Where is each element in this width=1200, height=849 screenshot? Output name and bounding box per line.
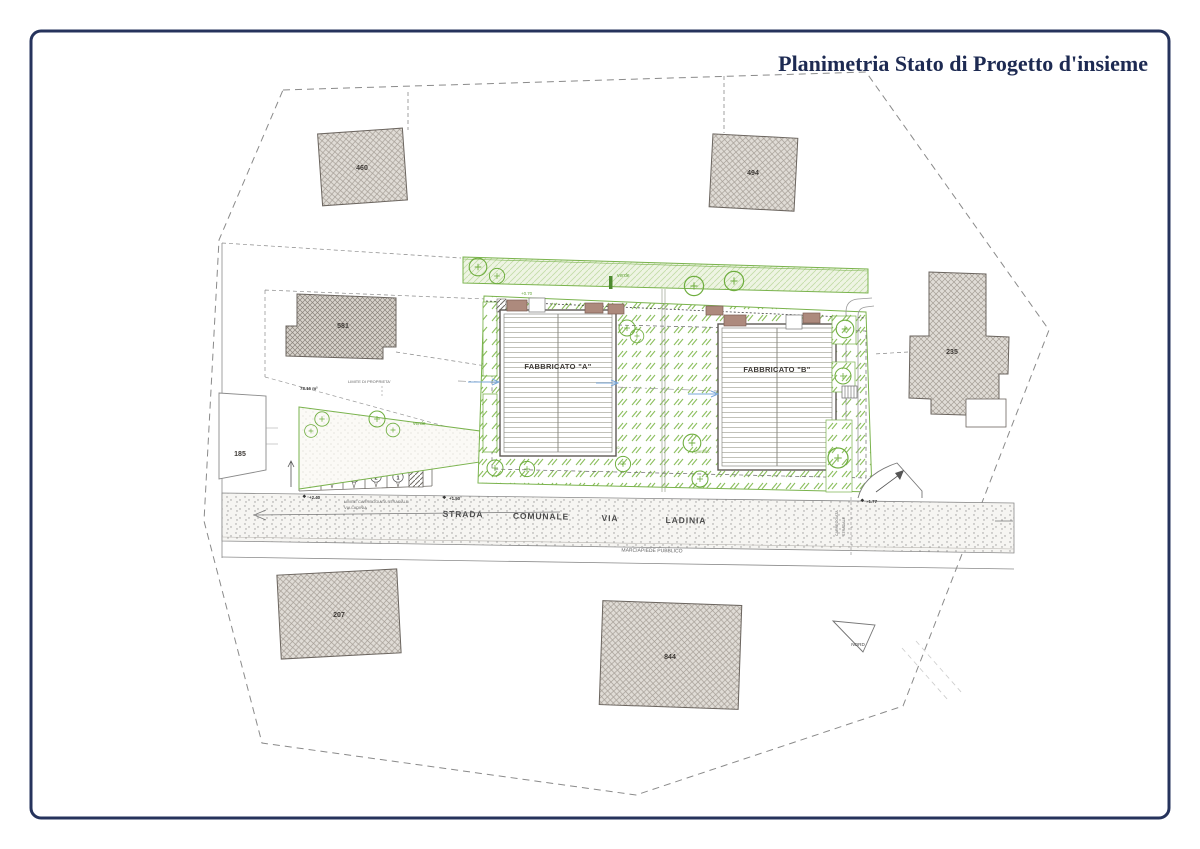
hedge-strip	[483, 394, 497, 452]
entry-arrow	[288, 461, 294, 487]
building-581: 581	[286, 294, 396, 359]
carriageway-label-1: CARREGGIATA	[835, 510, 839, 536]
building-185-label: 185	[234, 451, 246, 458]
north-arrow: NORD	[833, 621, 875, 652]
building-235: 235	[909, 272, 1009, 427]
fabbricato-b-label: FABBRICATO "B"	[743, 365, 810, 374]
gate-marker	[609, 276, 613, 289]
property-limit-label: LIMITE DI PROPRIETA'	[348, 379, 391, 384]
building-844-label: 844	[664, 654, 676, 661]
fabbricato-a-label: FABBRICATO "A"	[524, 362, 591, 371]
building-207: 207	[277, 569, 401, 659]
page-title: Planimetria Stato di Progetto d'insieme	[778, 51, 1148, 76]
sidewalk-line	[222, 557, 1014, 569]
building-185: 185	[219, 393, 278, 479]
building-844: 844	[599, 601, 742, 710]
hedge-strip	[483, 302, 497, 376]
verde-strip: verde	[463, 257, 868, 296]
level-177: -1.77	[867, 499, 878, 504]
carriageway-label-2: STRADALE	[842, 516, 846, 536]
stairs-icon	[842, 386, 857, 398]
terrace	[803, 313, 820, 323]
terrace	[608, 304, 624, 314]
building-581-label: 581	[337, 323, 349, 330]
level-150: +1.50	[449, 496, 461, 501]
building-460-label: 460	[356, 165, 368, 172]
terrace	[507, 300, 527, 311]
building-494: 494	[709, 134, 798, 211]
building-460: 460	[318, 128, 408, 206]
verde-left-label: verde	[413, 421, 426, 427]
building-207-label: 207	[333, 612, 345, 619]
road-limit-label-1: LIMITE CARREGGIATA STRADALE	[344, 499, 409, 504]
building-494-label: 494	[747, 170, 759, 177]
north-label: NORD	[851, 642, 865, 647]
area-label: 78.16 m²	[300, 386, 318, 391]
road-limit-label-2: VIA LADINIA	[344, 505, 367, 510]
site-plan-page: Planimetria Stato di Progetto d'insieme …	[0, 0, 1200, 849]
verde-top-label: verde	[617, 273, 630, 279]
sidewalk-label: MARCIAPIEDE PUBBLICO	[621, 548, 682, 555]
road: STRADA COMUNALE VIA LADINIA CARREGGIATA …	[222, 493, 1014, 569]
level-240: +2.40	[309, 495, 321, 500]
terrace	[585, 303, 603, 313]
level-070: +0.70	[521, 291, 533, 296]
stall-number-1: 1	[396, 476, 399, 482]
road-word-strada: STRADA	[443, 509, 484, 520]
road-word-ladinia: LADINIA	[666, 515, 707, 526]
site-plan-svg: Planimetria Stato di Progetto d'insieme …	[0, 0, 1200, 849]
road-word-via: VIA	[601, 513, 618, 523]
left-green-area: verde 78.16 m² LIMITE DI PROPRIETA'	[265, 377, 480, 489]
terrace	[706, 306, 723, 315]
terrace	[724, 315, 746, 326]
building-235-label: 235	[946, 349, 958, 356]
